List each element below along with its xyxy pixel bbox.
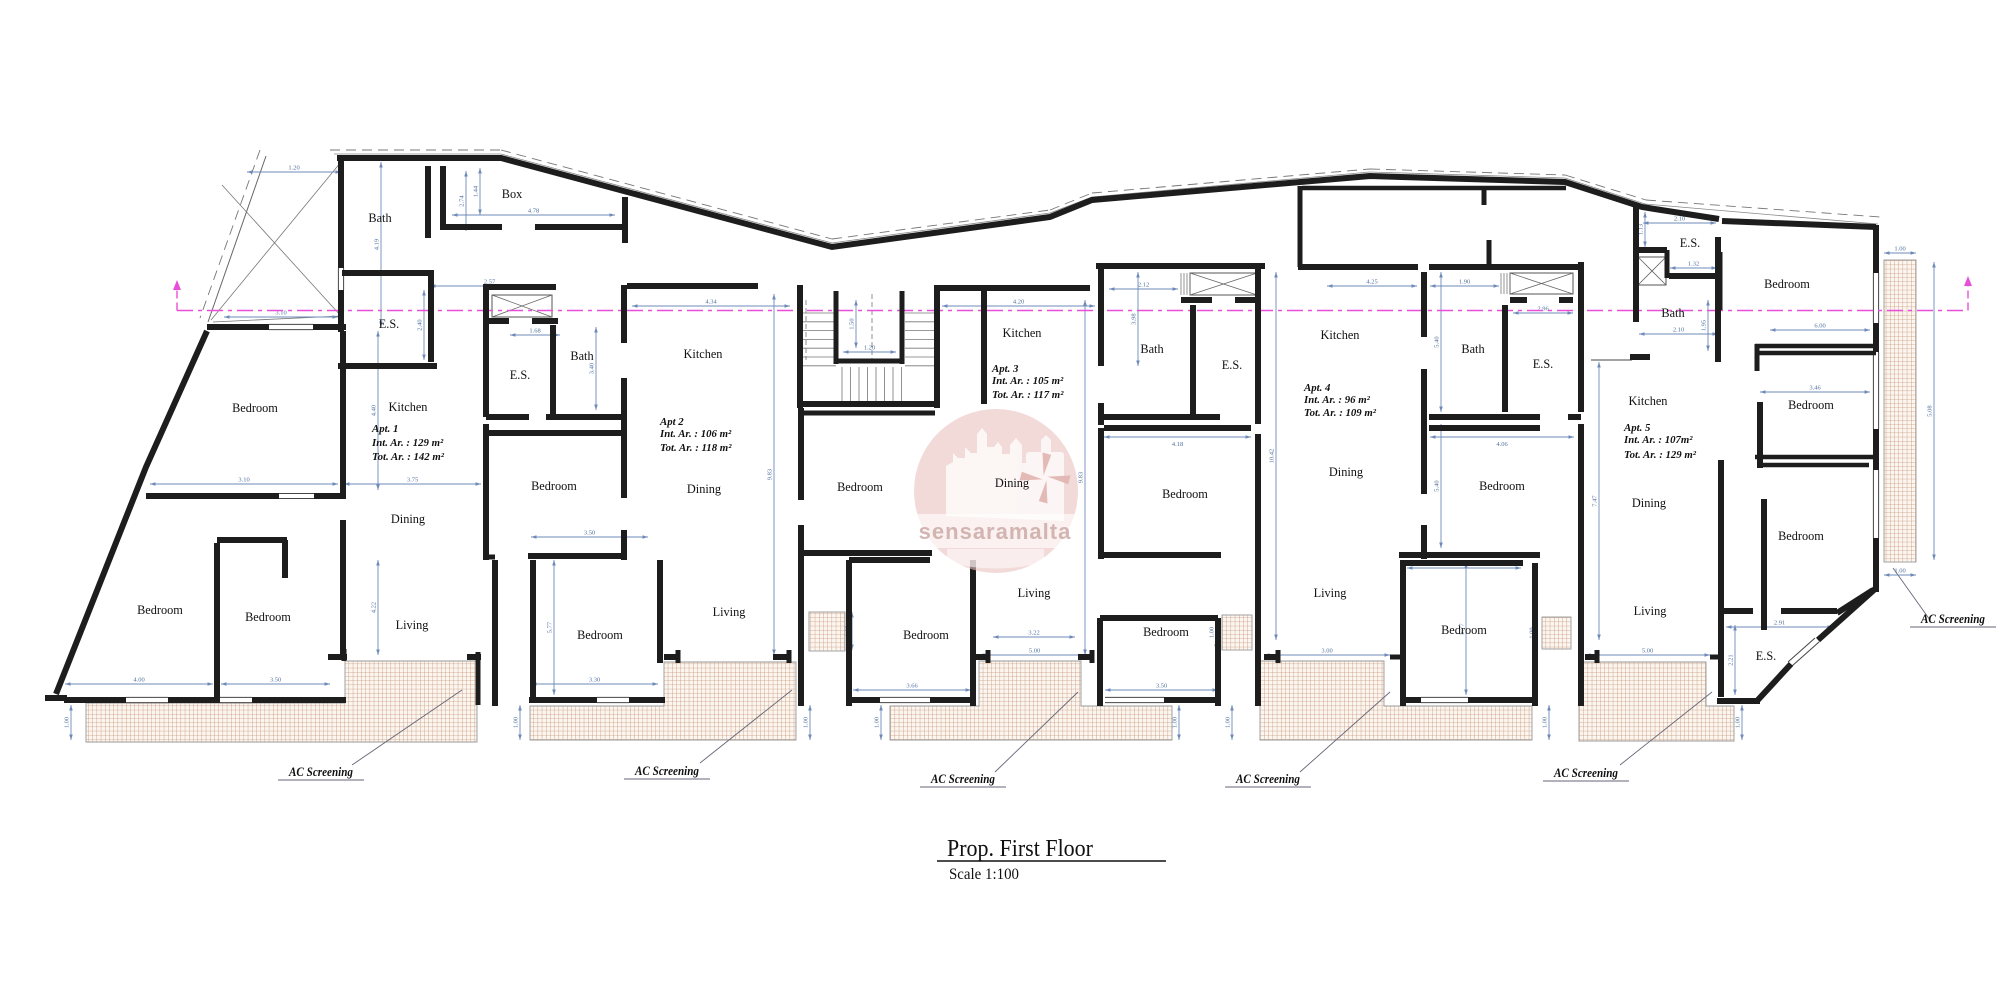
svg-text:Box: Box (502, 187, 523, 201)
svg-text:3.40: 3.40 (589, 363, 596, 374)
svg-text:1.00: 1.00 (1894, 568, 1905, 575)
svg-text:1.44: 1.44 (473, 185, 480, 197)
svg-text:1.00: 1.00 (803, 717, 810, 728)
svg-text:5.77: 5.77 (547, 621, 554, 633)
svg-text:sensaramalta: sensaramalta (919, 519, 1072, 544)
svg-text:Bedroom: Bedroom (232, 401, 278, 415)
svg-text:Int. Ar. : 106 m²: Int. Ar. : 106 m² (659, 428, 732, 440)
svg-text:E.S.: E.S. (1756, 649, 1777, 663)
svg-text:Tot. Ar. : 142 m²: Tot. Ar. : 142 m² (372, 451, 445, 463)
svg-text:1.00: 1.00 (874, 717, 881, 728)
svg-text:Living: Living (1314, 586, 1347, 600)
svg-text:1.00: 1.00 (1894, 246, 1905, 253)
svg-text:Dining: Dining (1632, 496, 1666, 510)
svg-text:Tot. Ar. : 129 m²: Tot. Ar. : 129 m² (1624, 449, 1697, 461)
svg-text:Bedroom: Bedroom (1764, 277, 1810, 291)
svg-text:6.00: 6.00 (1814, 323, 1825, 330)
svg-text:3.98: 3.98 (1131, 313, 1138, 324)
svg-text:Dining: Dining (1329, 465, 1363, 479)
svg-text:3.30: 3.30 (589, 677, 600, 684)
svg-text:1.00: 1.00 (64, 717, 71, 728)
svg-text:1.00: 1.00 (1542, 717, 1549, 728)
svg-text:Bedroom: Bedroom (903, 628, 949, 642)
svg-text:Apt 2: Apt 2 (659, 416, 684, 428)
svg-text:5.40: 5.40 (1434, 336, 1441, 347)
svg-text:5.08: 5.08 (1927, 405, 1934, 416)
svg-text:1.00: 1.00 (1225, 717, 1232, 728)
svg-text:Int. Ar. : 105 m²: Int. Ar. : 105 m² (991, 375, 1064, 387)
svg-text:E.S.: E.S. (1222, 358, 1243, 372)
svg-text:4.40: 4.40 (371, 405, 378, 416)
svg-text:Bedroom: Bedroom (577, 628, 623, 642)
svg-text:Kitchen: Kitchen (389, 400, 428, 414)
svg-text:5.00: 5.00 (1029, 648, 1040, 655)
svg-text:Int. Ar. : 129 m²: Int. Ar. : 129 m² (371, 437, 444, 449)
svg-text:Prop. First Floor: Prop. First Floor (947, 836, 1093, 862)
svg-text:10.42: 10.42 (1269, 449, 1276, 464)
svg-text:Kitchen: Kitchen (684, 347, 723, 361)
svg-text:2.10: 2.10 (1674, 216, 1685, 223)
svg-text:4.78: 4.78 (528, 208, 539, 215)
svg-text:AC Screening: AC Screening (1235, 772, 1300, 786)
svg-text:4.20: 4.20 (1013, 299, 1024, 306)
svg-text:Living: Living (396, 618, 429, 632)
svg-text:3.66: 3.66 (906, 683, 918, 690)
svg-text:Int. Ar. : 107m²: Int. Ar. : 107m² (1623, 434, 1693, 446)
svg-text:1.00: 1.00 (1735, 717, 1742, 728)
svg-text:1.32: 1.32 (1688, 261, 1699, 268)
svg-text:Tot. Ar. : 117 m²: Tot. Ar. : 117 m² (992, 389, 1064, 401)
svg-text:1.00: 1.00 (1172, 717, 1179, 728)
svg-text:E.S.: E.S. (510, 368, 531, 382)
svg-text:Apt. 3: Apt. 3 (991, 363, 1019, 375)
svg-text:1.68: 1.68 (529, 328, 540, 335)
svg-text:Bedroom: Bedroom (1788, 398, 1834, 412)
svg-text:2.10: 2.10 (1673, 327, 1684, 334)
svg-text:1.20: 1.20 (864, 345, 875, 352)
svg-text:2.40: 2.40 (417, 319, 424, 330)
svg-text:Bath: Bath (368, 211, 391, 225)
svg-text:9.83: 9.83 (1078, 472, 1085, 483)
svg-text:Scale 1:100: Scale 1:100 (949, 866, 1019, 883)
svg-text:Dining: Dining (687, 482, 721, 496)
svg-text:1.20: 1.20 (288, 165, 299, 172)
svg-text:E.S.: E.S. (1533, 357, 1554, 371)
svg-text:Bath: Bath (1140, 342, 1163, 356)
svg-text:4.34: 4.34 (705, 299, 717, 306)
svg-text:Living: Living (1634, 604, 1667, 618)
svg-text:4.00: 4.00 (133, 677, 144, 684)
svg-text:E.S.: E.S. (1680, 236, 1701, 250)
svg-text:1.90: 1.90 (1459, 279, 1470, 286)
svg-text:2.96: 2.96 (1537, 306, 1549, 313)
svg-text:3.75: 3.75 (407, 477, 418, 484)
svg-text:AC Screening: AC Screening (634, 764, 699, 778)
svg-text:1.00: 1.00 (1209, 627, 1216, 638)
svg-text:Kitchen: Kitchen (1003, 326, 1042, 340)
svg-text:Bedroom: Bedroom (1162, 487, 1208, 501)
svg-text:AC Screening: AC Screening (288, 765, 353, 779)
svg-text:Bedroom: Bedroom (1441, 623, 1487, 637)
svg-text:Kitchen: Kitchen (1321, 328, 1360, 342)
svg-text:Bedroom: Bedroom (1479, 479, 1525, 493)
svg-text:3.50: 3.50 (584, 530, 595, 537)
svg-text:Kitchen: Kitchen (1629, 394, 1668, 408)
svg-text:AC Screening: AC Screening (930, 772, 995, 786)
svg-text:7.47: 7.47 (1592, 495, 1599, 507)
svg-text:2.12: 2.12 (1138, 282, 1149, 289)
svg-text:4.19: 4.19 (374, 239, 381, 250)
svg-text:1.95: 1.95 (1701, 320, 1708, 331)
svg-text:Bedroom: Bedroom (531, 479, 577, 493)
svg-text:9.83: 9.83 (767, 469, 774, 480)
svg-text:3.00: 3.00 (1321, 648, 1332, 655)
svg-text:Bedroom: Bedroom (1143, 625, 1189, 639)
svg-text:3.46: 3.46 (1809, 385, 1821, 392)
svg-text:1.00: 1.00 (513, 717, 520, 728)
svg-text:Apt. 4: Apt. 4 (1303, 382, 1331, 394)
svg-text:1.50: 1.50 (849, 318, 856, 329)
svg-text:Dining: Dining (995, 476, 1029, 490)
svg-text:3.10: 3.10 (238, 477, 249, 484)
svg-text:Bedroom: Bedroom (245, 610, 291, 624)
svg-text:5.40: 5.40 (1434, 480, 1441, 491)
svg-text:4.22: 4.22 (371, 602, 378, 613)
svg-text:Apt. 5: Apt. 5 (1623, 422, 1651, 434)
svg-text:E.S.: E.S. (379, 317, 400, 331)
svg-text:Living: Living (1018, 586, 1051, 600)
svg-text:3.50: 3.50 (270, 677, 281, 684)
svg-text:4.18: 4.18 (1172, 441, 1183, 448)
svg-text:Bedroom: Bedroom (837, 480, 883, 494)
svg-text:AC Screening: AC Screening (1553, 766, 1618, 780)
svg-text:Living: Living (713, 605, 746, 619)
svg-text:2.21: 2.21 (1728, 654, 1735, 665)
svg-text:4.25: 4.25 (1366, 279, 1377, 286)
svg-text:Bedroom: Bedroom (137, 603, 183, 617)
svg-text:5.00: 5.00 (1642, 648, 1653, 655)
svg-text:Bath: Bath (570, 349, 593, 363)
svg-text:2.74: 2.74 (459, 195, 466, 207)
svg-text:AC Screening: AC Screening (1920, 612, 1985, 626)
svg-text:Bedroom: Bedroom (1778, 529, 1824, 543)
svg-text:4.06: 4.06 (1496, 441, 1508, 448)
svg-text:Bath: Bath (1661, 306, 1684, 320)
svg-text:3.22: 3.22 (1028, 630, 1039, 637)
svg-text:2.91: 2.91 (1774, 620, 1785, 627)
svg-text:Tot. Ar. : 118 m²: Tot. Ar. : 118 m² (660, 442, 732, 454)
svg-text:Bath: Bath (1461, 342, 1484, 356)
svg-text:Apt. 1: Apt. 1 (371, 423, 398, 435)
svg-text:Int. Ar. : 96 m²: Int. Ar. : 96 m² (1303, 394, 1371, 406)
svg-text:3.50: 3.50 (1156, 683, 1167, 690)
svg-text:Dining: Dining (391, 512, 425, 526)
svg-text:Tot. Ar. : 109 m²: Tot. Ar. : 109 m² (1304, 407, 1377, 419)
